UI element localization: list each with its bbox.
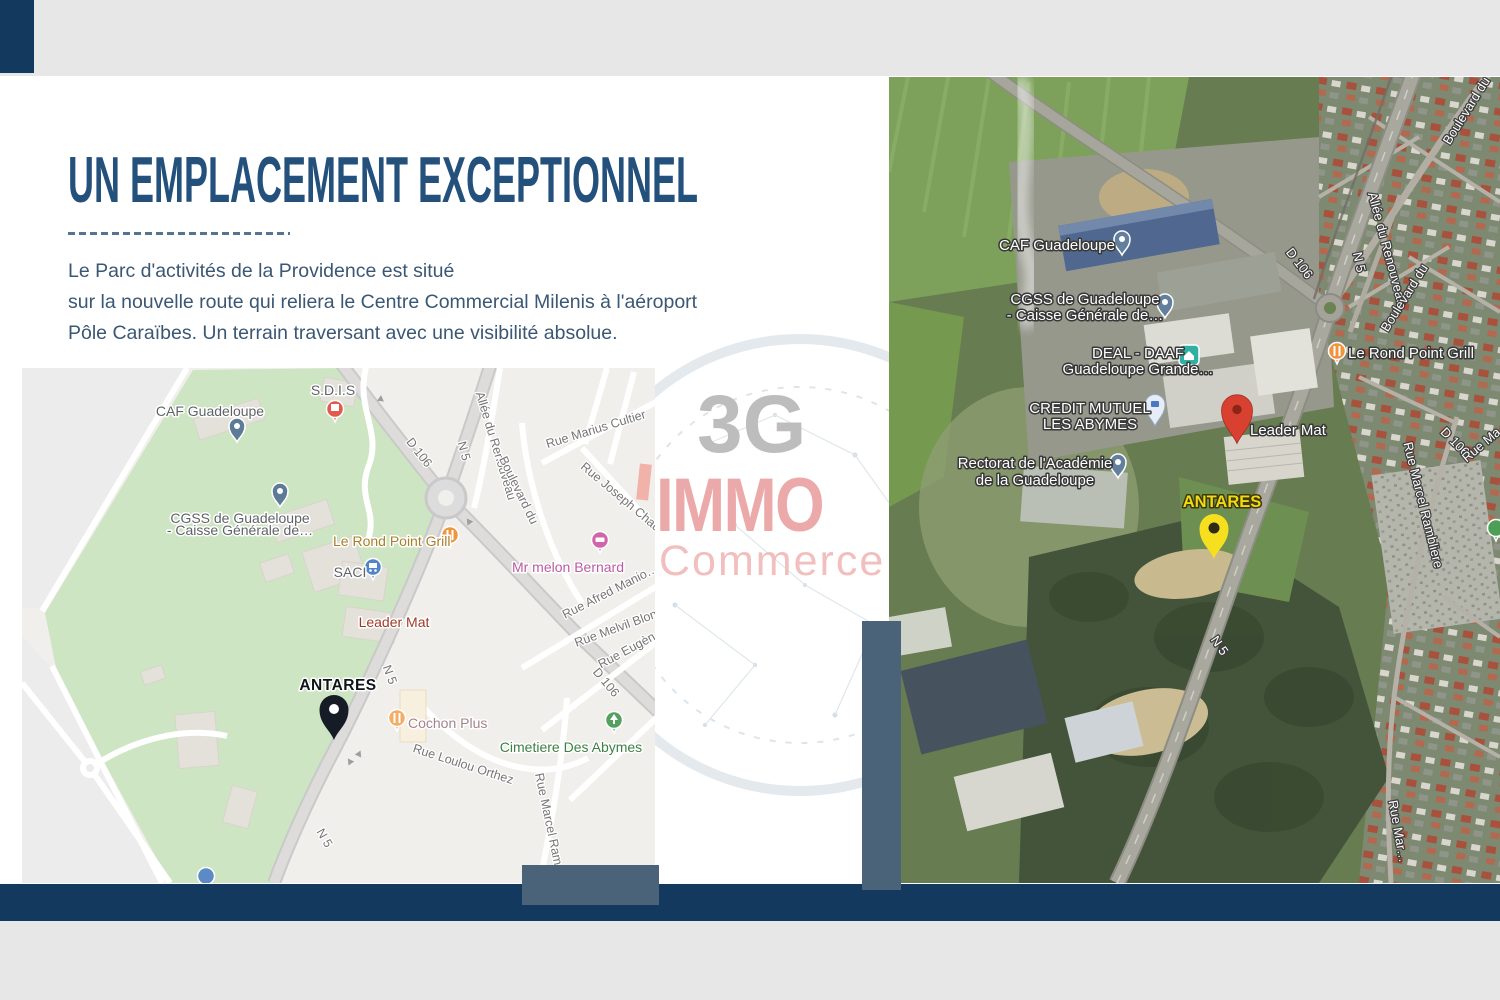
intro-paragraph: Le Parc d'activités de la Providence est… — [68, 256, 697, 349]
sat-label-rond-point-grill: Le Rond Point Grill — [1348, 345, 1474, 362]
street-label-cgss-2: - Caisse Générale de… — [167, 522, 313, 538]
sat-label-cgss-2: - Caisse Générale de… — [1007, 307, 1164, 324]
transit-poi-icon — [198, 868, 215, 884]
top-gray-band — [0, 0, 1500, 76]
slide-root: UN EMPLACEMENT EXCEPTIONNEL Le Parc d'ac… — [0, 0, 1500, 1000]
bottom-gray-band — [0, 921, 1500, 1000]
title-dashed-separator — [68, 232, 290, 235]
sat-label-caf: CAF Guadeloupe — [999, 237, 1115, 254]
street-label-mr-melon: Mr melon Bernard — [512, 559, 624, 575]
street-map: CAF Guadeloupe S.D.I.S CGSS de Guadeloup… — [22, 368, 655, 883]
street-label-cimetiere: Cimetiere Des Abymes — [500, 739, 642, 755]
sat-label-rectorat-2: de la Guadeloupe — [976, 472, 1094, 489]
street-label-sdis: S.D.I.S — [311, 382, 355, 398]
watermark-immo: IMMO — [656, 468, 823, 544]
street-label-rond-point-grill: Le Rond Point Grill — [333, 533, 451, 549]
paragraph-line: Le Parc d'activités de la Providence est… — [68, 256, 697, 287]
page-title: UN EMPLACEMENT EXCEPTIONNEL — [68, 148, 698, 213]
bottom-navy-bar — [0, 884, 1500, 921]
watermark-commerce: Commerce — [659, 540, 885, 583]
street-label-antares: ANTARES — [299, 677, 376, 694]
street-label-saci: SACI — [334, 564, 367, 580]
sat-label-deal-1: DEAL - DAAF — [1092, 345, 1184, 362]
watermark-3g: 3G — [697, 384, 806, 466]
street-label-caf: CAF Guadeloupe — [156, 403, 264, 419]
sat-label-deal-2: Guadeloupe Grande… — [1063, 361, 1214, 378]
corner-navy-block — [0, 0, 34, 73]
sat-label-cgss-1: CGSS de Guadeloupe — [1010, 291, 1159, 308]
sat-label-credit-mutuel-2: LES ABYMES — [1043, 416, 1137, 433]
satellite-map: CAF Guadeloupe CGSS de Guadeloupe - Cais… — [889, 77, 1500, 883]
paragraph-line: Pôle Caraïbes. Un terrain traversant ave… — [68, 318, 697, 349]
street-label-cochon-plus: Cochon Plus — [408, 715, 487, 731]
slate-vertical-bar — [862, 621, 901, 890]
slate-accent-rect — [522, 865, 659, 905]
sat-label-credit-mutuel-1: CREDIT MUTUEL — [1029, 400, 1150, 417]
sat-label-rectorat-1: Rectorat de l'Académie — [958, 455, 1113, 472]
paragraph-line: sur la nouvelle route qui reliera le Cen… — [68, 287, 697, 318]
sat-label-antares: ANTARES — [1183, 493, 1262, 511]
sat-label-leader-mat: Leader Mat — [1250, 422, 1327, 439]
street-label-leader-mat: Leader Mat — [359, 614, 430, 630]
